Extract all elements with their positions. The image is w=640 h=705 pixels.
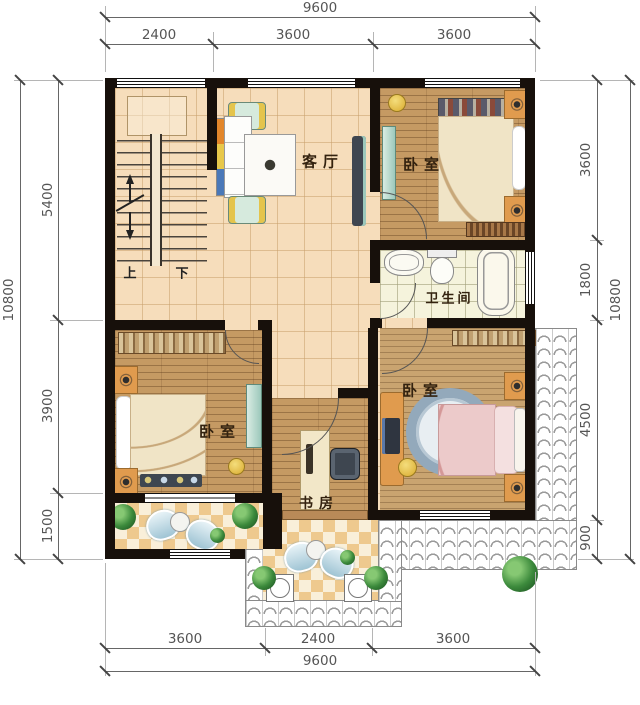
ext-line [372,628,373,656]
window-bedroom2-bottom [420,510,490,520]
study-chair [330,448,360,480]
tv-cabinet-bedroom-bottom-left [246,384,262,448]
ext-line [578,559,634,560]
label-study: 书房 [293,493,339,513]
wall-outer-left [105,78,115,559]
dim-left-seg1: 5400 [40,183,56,217]
window-bathroom-right [525,252,535,304]
tv-cabinet-bedroom-top-right [382,126,396,200]
eave-balcony-right [378,520,402,602]
dim-bottom-seg1: 3600 [168,631,202,647]
plant-balcony-left-small [210,528,225,543]
eave-right-strip [535,328,577,522]
bed1-pillow-band [438,98,514,118]
sliding-door-bedroom3-balcony [145,493,235,503]
wall-bathroom-top [370,240,535,250]
toilet-bowl [430,257,454,284]
label-bathroom: 卫生间 [422,288,473,307]
rug-bedroom-top-right [466,222,526,237]
dim-top-segment-line [105,44,535,45]
nightstand-bed3-bottom [114,468,138,496]
eave-bottom-right [392,520,577,570]
dim-top-seg3: 3600 [437,27,471,43]
wardrobe-bedroom-bottom-right [452,330,536,346]
stool-bedroom-bottom-left [228,458,245,475]
dim-right-seg2: 1800 [578,263,594,297]
label-bedroom-bottom-left: 卧室 [193,421,241,442]
wall-bedroom2-top [427,318,535,328]
stair-arrow-line-upper [129,184,131,202]
dim-top-seg1: 2400 [142,27,176,43]
dim-left-overall: 10800 [1,279,17,322]
dim-top-seg2: 3600 [276,27,310,43]
stair-arrow-up-icon [126,174,134,184]
ext-line [265,628,266,656]
wall-stair-right [207,78,217,170]
dim-right-overall-line [630,80,631,559]
label-bedroom-bottom-right: 卧室 [396,380,444,401]
wall-study-east [368,328,378,520]
dim-right-seg4: 900 [578,525,594,551]
armchair-bottom [228,196,266,224]
nightstand-bed3-top [114,366,138,394]
dim-right-seg3: 4500 [578,403,594,437]
bathtub [477,246,515,316]
floor-plan-canvas: 客厅 卧室 卫生间 卧室 卧室 书房 上 下 9600 2400 3600 36… [0,0,640,705]
coffee-table [244,134,296,196]
railing-balcony-left [170,549,230,559]
label-stair-up: 上 [123,263,136,282]
wall-bedroom3-top [105,320,225,330]
stool-bedroom-bottom-right [398,458,417,477]
stair-arrow-down-icon [126,230,134,240]
window-stair-top [117,78,205,88]
ext-line [373,32,374,72]
label-living-room: 客厅 [296,151,344,172]
dim-bottom-seg2: 2400 [301,631,335,647]
dim-right-seg1: 3600 [578,143,594,177]
stool-bedroom-top-right [388,94,406,112]
bench-bed3 [140,474,202,487]
ext-line [213,32,214,72]
dim-left-seg3: 1500 [40,509,56,543]
dim-top-overall: 9600 [303,0,337,16]
wall-bedroom3-top-pier [258,320,272,330]
stair-landing [127,96,187,136]
plant-balcony-left-2 [232,503,258,529]
dim-bottom-segment-line [105,648,535,649]
dim-top-overall-line [105,17,535,18]
computer-monitor [382,418,400,454]
ext-line [105,563,106,676]
stair-arrow-line-lower [129,212,131,230]
plant-corner-bottom-right [502,556,538,592]
label-stair-down: 下 [175,263,188,282]
bed1-bolster [512,126,526,190]
plant-balcony-center-small [340,550,355,565]
dim-bottom-seg3: 3600 [436,631,470,647]
label-bedroom-top-right: 卧室 [397,154,445,175]
wall-balcony-pier [263,503,282,549]
dim-right-overall: 10800 [608,279,624,322]
stair-rail [150,134,162,266]
ext-line [540,80,634,81]
dim-left-seg2: 3900 [40,389,56,423]
dim-bottom-overall: 9600 [303,653,337,669]
wall-living-bedroom1 [370,78,380,192]
plant-balcony-center-1 [252,566,276,590]
wardrobe-bedroom-bottom-left [118,332,226,354]
bed1-duvet [438,116,514,222]
dim-bottom-overall-line [105,671,535,672]
bathroom-sink [384,249,424,276]
bed2-duvet-pink [438,404,496,476]
wall-study-top [338,388,370,398]
ext-line [535,572,536,676]
eave-balcony-bottom [245,600,402,627]
tv-cabinet-living [352,136,366,226]
wall-bathroom-left [370,250,380,283]
wall-bedroom3-study [262,330,272,493]
window-bedroom1-top [425,78,520,88]
dim-left-overall-line [20,80,21,559]
plant-balcony-center-2 [364,566,388,590]
window-living-top [248,78,355,88]
wall-bathroom-bottom-pier [370,318,382,328]
